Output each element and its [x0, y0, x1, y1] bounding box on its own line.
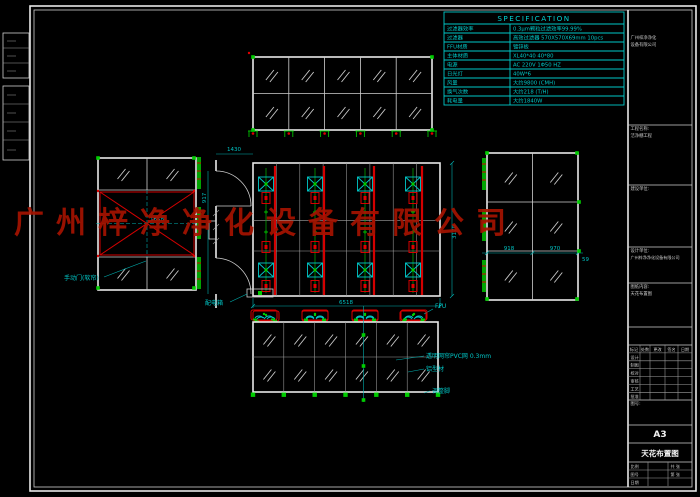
tb-content-value: 天花布置图: [631, 290, 652, 297]
cad-drawing: SPECIFICATION 过滤器效率 0.3μm颗粒过滤效率99.99% 过滤…: [0, 0, 700, 497]
manual-door-label: 手动门(软帘): [64, 274, 99, 282]
top-elevation: [248, 52, 437, 137]
tb-content-label: 图纸内容:: [631, 283, 650, 290]
number-label: 图号: [631, 471, 639, 477]
rev-header: 标记: [630, 346, 638, 352]
spec-label: 主体材质: [447, 52, 469, 60]
tb-project-label: 工程名称:: [631, 125, 650, 132]
power-box-label: 配电箱: [205, 299, 223, 307]
sheets-label: 共 张: [671, 463, 681, 469]
spec-value: AC 220V 1Φ50 HZ: [513, 63, 561, 69]
ffu-side-row: [253, 311, 426, 322]
right-elev-dim2: 970: [550, 246, 561, 252]
spec-title: SPECIFICATION: [497, 14, 570, 23]
spec-value: 大约9800 (CMH): [513, 79, 555, 87]
tb-client-label: 建设单位:: [631, 185, 650, 192]
scale-label: 比例: [631, 463, 639, 469]
spec-value: 高效过滤器 570X570X69mm 10pcs: [513, 34, 603, 42]
spec-table: SPECIFICATION 过滤器效率 0.3μm颗粒过滤效率99.99% 过滤…: [444, 12, 624, 105]
plan-left-dim: 917: [202, 192, 208, 203]
spec-label: 过滤器效率: [447, 25, 474, 33]
ffu-roof-symbols: [251, 310, 427, 321]
paper-size: A3: [653, 430, 666, 440]
spec-value: 40W*6: [513, 72, 532, 78]
bottom-elevation: 透明网帘PVC网 0.3mm 铝型材 调整脚: [251, 306, 491, 402]
scale-table: 比例 图号 日期 共 张 第 张: [628, 462, 692, 486]
sig-row: 审核: [631, 377, 639, 383]
revision-table: 标记 处数 更改 签名 日期 设计 制图 校对 审核 工艺 批准: [628, 345, 692, 400]
sig-row: 工艺: [631, 386, 639, 391]
tb-number-label: 图号:: [631, 401, 641, 407]
aluminum-profile-label: 铝型材: [426, 365, 444, 373]
spec-label: 日光灯: [447, 70, 464, 78]
tb-project-value: 洁净棚工程: [631, 132, 653, 139]
tb-design-label: 设计单位:: [631, 247, 650, 254]
title-block: 广州梓净净化 设备有限公司 工程名称: 洁净棚工程 建设单位: 设计单位: 广州…: [628, 10, 692, 487]
company-watermark: 广州梓净净化设备有限公司: [14, 206, 518, 241]
spec-label: 过滤器: [447, 34, 464, 42]
plan-width-dim: 6518: [339, 300, 353, 306]
sig-row: 制图: [631, 362, 639, 368]
spec-value: 0.3μm颗粒过滤效率99.99%: [513, 25, 582, 33]
rev-header: 处数: [641, 346, 649, 352]
spec-label: FFU材质: [447, 43, 468, 51]
spec-label: 电源: [447, 61, 458, 69]
ffu-mount-brackets: [248, 131, 437, 137]
rev-header: 日期: [681, 346, 689, 352]
cad-sheet: SPECIFICATION 过滤器效率 0.3μm颗粒过滤效率99.99% 过滤…: [0, 0, 700, 497]
leveling-feet: [251, 393, 440, 397]
sheet-border: [30, 6, 696, 491]
date-label: 日期: [631, 479, 639, 485]
right-elev-dim1: 918: [504, 246, 515, 252]
margin-sign-tables: [3, 33, 29, 160]
tb-company-line2: 设备有限公司: [631, 41, 657, 48]
spec-value: 镀锌板: [513, 43, 530, 51]
sig-row: 设计: [631, 354, 639, 360]
foot-label: 调整脚: [432, 387, 450, 395]
pvc-mesh-label: 透明网帘PVC网 0.3mm: [426, 352, 491, 360]
right-elev-dim3: 59: [582, 257, 589, 263]
plan-top-dim: 1430: [227, 147, 241, 153]
spec-value: XL40*40 40*80: [513, 54, 554, 60]
tb-company-line1: 广州梓净净化: [631, 34, 657, 41]
spec-label: 耗电量: [447, 97, 464, 105]
sig-row: 批准: [631, 393, 639, 399]
rev-header: 签名: [667, 346, 675, 352]
tb-design-value: 广州梓净净化设备有限公司: [631, 254, 680, 260]
spec-value: 大约218 (T/H): [513, 88, 549, 96]
rev-header: 更改: [653, 346, 661, 352]
spec-value: 大约1840W: [513, 97, 543, 105]
sheet-title: 天花布置图: [641, 448, 679, 458]
page-label: 第 张: [671, 471, 681, 477]
ffu-label: FFU: [435, 303, 446, 310]
sig-row: 校对: [631, 370, 639, 376]
spec-label: 换气次数: [447, 88, 469, 96]
spec-label: 风量: [447, 80, 458, 87]
